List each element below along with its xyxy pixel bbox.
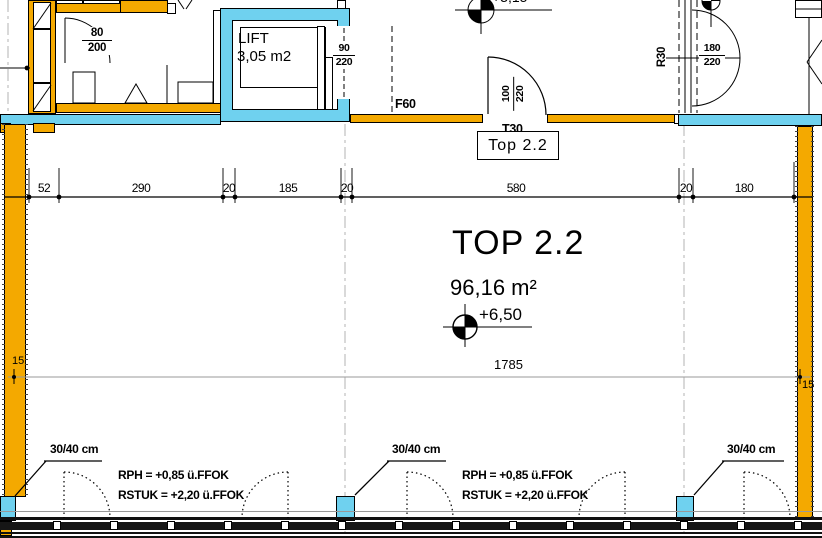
facade-mullion (794, 521, 802, 530)
dim-180: 180 (722, 181, 766, 195)
f60-wall-left-segment (350, 114, 483, 123)
facade-mullion (452, 521, 460, 530)
dim-290: 290 (119, 181, 163, 195)
dim-20b: 20 (325, 181, 369, 195)
unit-area: 96,16 m² (450, 276, 537, 299)
bath-fixtures (73, 65, 213, 103)
rstuk-label-1: RSTUK = +2,20 ü.FFOK (118, 489, 244, 502)
facade-mullion (395, 521, 403, 530)
exterior-wall-left (4, 124, 26, 497)
dim-20c: 20 (664, 181, 708, 195)
dim-20a: 20 (207, 181, 251, 195)
wall-cell-2 (33, 29, 51, 83)
facade-mullion (338, 521, 346, 530)
bath-door-size-label: 80 200 (82, 27, 112, 55)
dim-185: 185 (266, 181, 310, 195)
f60-wall-right-segment (547, 114, 677, 123)
unit-level: +6,50 (479, 306, 522, 324)
rph-label-2: RPH = +0,85 ü.FFOK (462, 469, 573, 482)
column-size-label-1: 30/40 cm (50, 443, 98, 456)
dim-52: 52 (22, 181, 66, 195)
level-marker-upper-right-icon (702, 0, 720, 27)
unit-title: TOP 2.2 (452, 226, 584, 262)
hatch-left-wall-inner (25, 124, 28, 497)
facade-mullion (566, 521, 574, 530)
upper-partial-door (178, 0, 192, 9)
unit-tag-label: Top 2.2 (488, 137, 547, 155)
lift-door-width: 90 (338, 43, 349, 54)
floorplan-canvas: { "unit": { "title": "TOP 2.2", "area": … (0, 0, 822, 538)
lift-area-label: 3,05 m2 (237, 49, 291, 65)
lift-door-panel-1 (317, 26, 325, 110)
hatch-left-wall-outer (2, 124, 5, 497)
entry-door-size-label: 100 220 (501, 77, 527, 111)
facade-mullion (680, 521, 688, 530)
column-size-label-2: 30/40 cm (392, 443, 440, 456)
fraction-bar (82, 40, 112, 41)
r30-label: R30 (656, 47, 668, 67)
facade-mullion (509, 521, 517, 530)
facade-mullion (167, 521, 175, 530)
facade-mullion (623, 521, 631, 530)
upper-level-partial: +3,15 (492, 0, 527, 5)
linework (0, 0, 822, 538)
grid-axes (0, 0, 822, 538)
dim-total-label: 1785 (494, 358, 523, 372)
lift-name-label: LIFT (238, 31, 269, 47)
facade-mullion (53, 521, 61, 530)
door-jamb-cap (167, 3, 176, 14)
facade-frame-top (0, 517, 822, 520)
facade-mullion (110, 521, 118, 530)
facade-mullion (737, 521, 745, 530)
stairs-lines (795, 9, 822, 114)
facade-glazing-bar (0, 522, 822, 530)
level-marker-top-icon (455, 0, 552, 34)
dim-wall-right-label: 15 (802, 380, 814, 392)
rph-label-1: RPH = +0,85 ü.FFOK (118, 469, 229, 482)
right-door-width: 180 (704, 43, 721, 54)
wall-stub-under-band (33, 123, 55, 133)
bath-bottom-wall (56, 103, 222, 113)
lift-wall-cap (337, 0, 346, 9)
dim-overall (8, 369, 810, 384)
rstuk-label-2: RSTUK = +2,20 ü.FFOK (462, 489, 588, 502)
unit-tag-box: Top 2.2 (477, 131, 559, 160)
wall-top-block (120, 0, 168, 13)
bath-top-wall (56, 3, 121, 13)
hatch-right-wall-outer (795, 126, 798, 518)
entry-door-width: 100 (501, 86, 512, 103)
right-door-height: 220 (704, 57, 721, 68)
column-size-label-3: 30/40 cm (727, 443, 775, 456)
facade-frame-mid (0, 532, 822, 534)
facade-mullion (224, 521, 232, 530)
facade-mullion (281, 521, 289, 530)
entry-door-height: 220 (516, 86, 527, 103)
dim-580: 580 (494, 181, 538, 195)
facade-line-outer (0, 511, 822, 512)
wall-cell-3 (33, 83, 51, 112)
wall-tick-top-left (0, 66, 30, 71)
r30-wall-lines (666, 0, 702, 113)
concrete-band-right (678, 114, 822, 126)
hatch-right-wall-inner (811, 126, 814, 518)
right-door-size-label: 180 220 (699, 43, 725, 69)
stairs-landing (795, 0, 822, 18)
dim-wall-left-label: 15 (12, 356, 24, 368)
lift-door-height: 220 (336, 57, 353, 68)
lift-door-size-label: 90 220 (333, 43, 355, 69)
lift-door-panel-2 (325, 57, 333, 110)
bath-door-width: 80 (91, 27, 103, 39)
bath-door-height: 200 (88, 42, 106, 54)
wall-cell-1 (33, 2, 51, 29)
f60-label: F60 (395, 98, 416, 111)
